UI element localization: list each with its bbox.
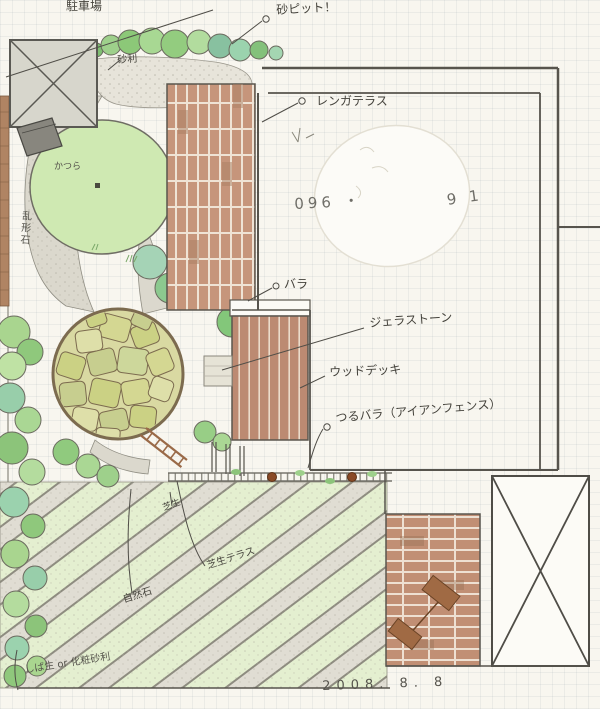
katsura-tree-label: かつら [54,163,81,172]
garden-plan-sheet: 駐車場 砂ピット！ 砂利 レンガテラス バラ ジェラストーン ウッドデッキ つる… [0,0,600,709]
parking-square [10,40,97,127]
sand-pit-label: 砂ピット！ [276,1,337,16]
brick-terrace [167,84,255,310]
rose-label: バラ [284,278,308,290]
garden-plan-drawing [0,0,600,709]
gela-stone-pad [204,356,232,386]
wood-deck [232,316,308,440]
gravel-label: 砂利 [117,55,138,66]
wood-deck-label: ウッドデッキ [329,363,401,378]
left-wood-fence [0,96,9,306]
reserved-area-x [492,476,589,666]
scribble-marks [292,128,314,142]
brick-terrace-label: レンガテラス [316,95,388,107]
crazy-paving-label: 乱形石 [17,210,29,247]
pergola-beam [230,300,310,316]
stone-circle-patio [53,307,183,443]
lawn-terraces [0,482,387,688]
phone-number-left: 096 ・ [294,193,363,212]
parking-label: 駐車場 [66,0,102,12]
